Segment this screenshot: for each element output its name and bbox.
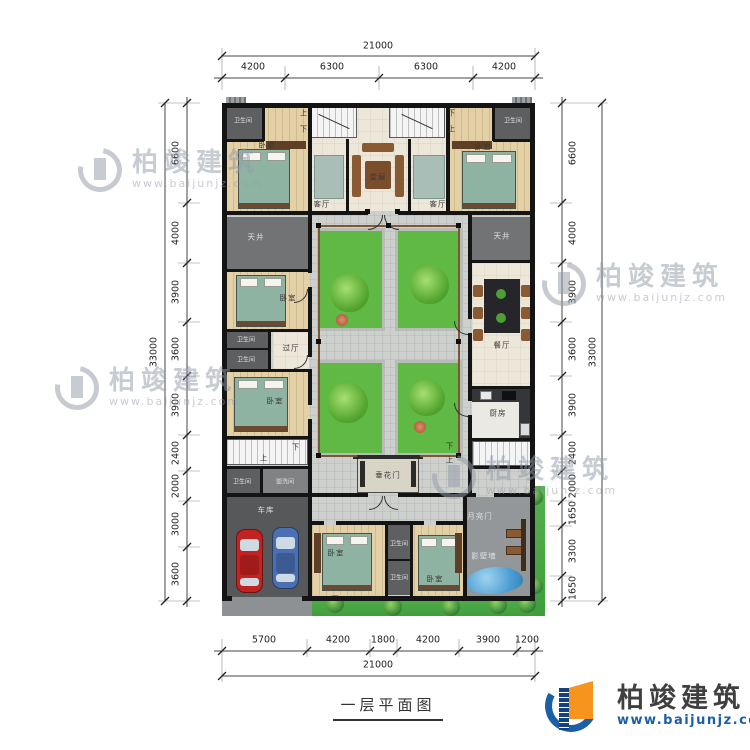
- car-red: [236, 529, 263, 593]
- wall: [308, 215, 312, 273]
- watermark: 柏竣建筑 www.baijunjz.com: [55, 366, 240, 410]
- dim-left-seg: 2000: [171, 474, 182, 498]
- room-label-bathroom: 卫生间: [504, 116, 522, 125]
- column: [456, 453, 461, 458]
- wardrobe: [455, 533, 462, 573]
- floor-plan-sheet: 卫生间 卧室 上 下 客厅 堂屋 客厅 下 上 卧室 卫生间 天井 卧室 卫生间…: [0, 0, 750, 750]
- stairs-up-label: 上: [260, 453, 269, 464]
- dim-right-seg: 6600: [568, 141, 579, 165]
- column: [316, 223, 321, 228]
- wall: [468, 415, 472, 497]
- dim-bottom-seg: 5700: [252, 635, 276, 646]
- wall: [308, 371, 312, 405]
- red-plant-icon: [414, 421, 426, 433]
- room-label-hall: 堂屋: [370, 172, 387, 183]
- kitchen-stove: [502, 391, 516, 400]
- wall: [385, 525, 388, 597]
- room-label-garage: 车库: [258, 505, 275, 516]
- bed-icon: [462, 151, 516, 209]
- stairs-down-label: 下: [446, 441, 455, 452]
- room-label-bathroom: 卫生间: [237, 355, 255, 364]
- door-arc: [384, 496, 398, 510]
- wall: [308, 497, 312, 601]
- room-label-dining: 餐厅: [494, 340, 511, 351]
- dim-bottom-seg: 1800: [371, 635, 395, 646]
- dim-right-seg: 3900: [568, 280, 579, 304]
- bed-icon: [322, 533, 372, 591]
- wall: [262, 103, 265, 141]
- dining-chair: [473, 285, 483, 297]
- tree-icon: [331, 274, 369, 312]
- driveway-apron: [222, 596, 312, 616]
- stairs-bottom-right: [472, 441, 531, 466]
- room-label-living: 客厅: [430, 199, 447, 210]
- wall: [308, 287, 312, 357]
- room-label-bathroom: 卫生间: [233, 477, 251, 486]
- dim-top-seg: 6300: [320, 62, 344, 73]
- wall: [222, 436, 312, 439]
- kitchen-sink: [480, 391, 492, 400]
- dim-right-seg: 2400: [568, 441, 579, 465]
- wall: [410, 525, 413, 597]
- wall: [468, 466, 535, 469]
- flower-gate-pillar: [411, 461, 416, 487]
- flower-gate-pillar: [360, 461, 365, 487]
- dim-bottom-total: 21000: [363, 660, 393, 671]
- room-label-kitchen: 厨房: [490, 408, 507, 419]
- dim-bottom-seg: 4200: [416, 635, 440, 646]
- room-label-passage: 过厅: [283, 343, 300, 354]
- brand-url: www.baijunjz.com: [617, 713, 750, 728]
- lightwell-left-floor: [226, 217, 309, 270]
- wall: [222, 348, 270, 350]
- wall: [308, 103, 312, 215]
- tree-icon: [409, 380, 445, 416]
- watermark-url: www.baijunjz.com: [596, 291, 727, 304]
- wall: [530, 103, 535, 601]
- column: [365, 209, 370, 214]
- door-arc: [369, 496, 383, 510]
- dining-chair: [473, 329, 483, 341]
- wall: [436, 521, 463, 525]
- wall: [302, 596, 535, 601]
- tree-icon: [411, 266, 449, 304]
- bench: [506, 546, 522, 555]
- stairs-top-left: [310, 107, 357, 138]
- tree-icon: [328, 383, 368, 423]
- room-label-living: 客厅: [314, 199, 331, 210]
- room-label-bathroom: 卫生间: [234, 116, 252, 125]
- wall: [312, 493, 368, 497]
- page-title: 一层平面图: [333, 694, 443, 721]
- brand-logo-icon: [545, 676, 609, 736]
- bed-icon: [238, 149, 290, 209]
- wall: [492, 103, 495, 141]
- dim-bottom-seg: 4200: [326, 635, 350, 646]
- red-plant-icon: [336, 314, 348, 326]
- brand-name: 柏竣建筑: [617, 684, 750, 714]
- wall: [468, 260, 535, 263]
- door-arc: [454, 321, 468, 335]
- room-label-bedroom: 卧室: [475, 142, 492, 153]
- room-label-bathroom: 卫生间: [390, 573, 408, 582]
- dim-left-seg: 4000: [171, 221, 182, 245]
- dim-top-seg: 6300: [414, 62, 438, 73]
- dim-right-seg: 3300: [568, 539, 579, 563]
- dim-top-seg: 4200: [241, 62, 265, 73]
- watermark-brand: 柏竣建筑: [596, 264, 727, 291]
- hall-sofa: [362, 143, 394, 152]
- column: [386, 223, 391, 228]
- dim-bottom-seg: 3900: [476, 635, 500, 646]
- watermark-brand: 柏竣建筑: [109, 368, 240, 395]
- wall: [222, 329, 312, 332]
- wall: [494, 493, 535, 497]
- room-label-moon-gate: 月亮门: [467, 511, 493, 522]
- wall: [260, 466, 263, 495]
- wall: [408, 139, 411, 215]
- car-blue: [272, 527, 299, 589]
- stairs-up-label: 上: [300, 108, 309, 119]
- dim-right-seg: 1650: [568, 501, 579, 525]
- living-right-rug: [413, 155, 445, 199]
- wall: [308, 419, 312, 497]
- wall: [493, 139, 535, 142]
- wall: [222, 269, 312, 272]
- stairs-up-label: 上: [446, 455, 455, 466]
- hall-sofa: [395, 155, 404, 197]
- dim-top-seg: 4200: [492, 62, 516, 73]
- stairs-down-label: 下: [448, 108, 457, 119]
- dim-left-seg: 3600: [171, 337, 182, 361]
- dim-top-total: 21000: [363, 41, 393, 52]
- dim-left-seg: 3900: [171, 280, 182, 304]
- wall: [268, 329, 271, 371]
- wall: [468, 215, 472, 319]
- room-label-bathroom: 卫生间: [390, 539, 408, 548]
- stairs-up-label: 上: [448, 124, 457, 135]
- dining-chair: [473, 307, 483, 319]
- watermark-logo-icon: [78, 148, 122, 192]
- dim-left-seg: 3900: [171, 393, 182, 417]
- watermark-logo-icon: [542, 262, 586, 306]
- table-plant: [496, 289, 506, 299]
- dim-left-seg: 3000: [171, 512, 182, 536]
- dim-right-seg: 1650: [568, 576, 579, 600]
- door-arc: [368, 215, 383, 230]
- flower-gate-beam: [353, 455, 423, 459]
- wall: [468, 333, 472, 401]
- column: [456, 339, 461, 344]
- room-label-laundry: 盥洗间: [276, 477, 294, 486]
- wall: [468, 438, 535, 441]
- room-label-bedroom: 卧室: [259, 140, 276, 151]
- wall: [222, 369, 312, 372]
- column: [395, 209, 400, 214]
- room-label-bedroom: 卧室: [267, 396, 284, 407]
- wall: [346, 139, 349, 215]
- dim-right-seg: 2000: [568, 474, 579, 498]
- wall: [222, 466, 312, 469]
- room-label-lightwell: 天井: [494, 231, 511, 242]
- bed-icon: [236, 275, 286, 327]
- kitchen-fridge: [520, 423, 530, 436]
- wall: [385, 559, 413, 561]
- column: [316, 453, 321, 458]
- screen-wall: [521, 519, 526, 571]
- dining-table: [484, 279, 520, 333]
- room-label-lightwell: 天井: [248, 232, 265, 243]
- room-label-bedroom: 卧室: [427, 574, 444, 585]
- dim-right-seg: 3900: [568, 393, 579, 417]
- floor-plan: 卫生间 卧室 上 下 客厅 堂屋 客厅 下 上 卧室 卫生间 天井 卧室 卫生间…: [222, 103, 535, 601]
- wardrobe: [314, 533, 321, 573]
- room-label-screen-wall: 影壁墙: [471, 551, 497, 562]
- room-label-bedroom: 卧室: [280, 293, 297, 304]
- watermark-logo-icon: [55, 366, 99, 410]
- wall: [222, 103, 227, 601]
- wall: [222, 103, 535, 108]
- room-label-bedroom: 卧室: [328, 548, 345, 559]
- column: [316, 339, 321, 344]
- bench: [506, 529, 522, 538]
- brand-logo: 柏竣建筑 www.baijunjz.com: [545, 676, 750, 736]
- stairs-down-label: 下: [292, 442, 301, 453]
- dim-right-seg: 4000: [568, 221, 579, 245]
- dim-left-seg: 2400: [171, 441, 182, 465]
- column: [456, 223, 461, 228]
- wall: [468, 386, 535, 389]
- stairs-down-label: 下: [300, 124, 309, 135]
- dim-left-seg: 6600: [171, 141, 182, 165]
- hall-sofa: [352, 155, 361, 197]
- table-plant: [496, 313, 506, 323]
- room-label-bathroom: 卫生间: [237, 335, 255, 344]
- wall: [446, 103, 450, 215]
- living-left-rug: [314, 155, 344, 199]
- dim-right-seg: 3600: [568, 337, 579, 361]
- wall: [312, 521, 324, 525]
- dim-bottom-seg: 1200: [515, 635, 539, 646]
- dim-left-seg: 3600: [171, 562, 182, 586]
- wall: [398, 211, 535, 215]
- railing: [318, 455, 357, 457]
- dim-left-total: 33000: [149, 337, 160, 367]
- room-label-flower-gate: 垂花门: [375, 470, 401, 481]
- wall: [222, 493, 312, 497]
- dim-right-total: 33000: [588, 337, 599, 367]
